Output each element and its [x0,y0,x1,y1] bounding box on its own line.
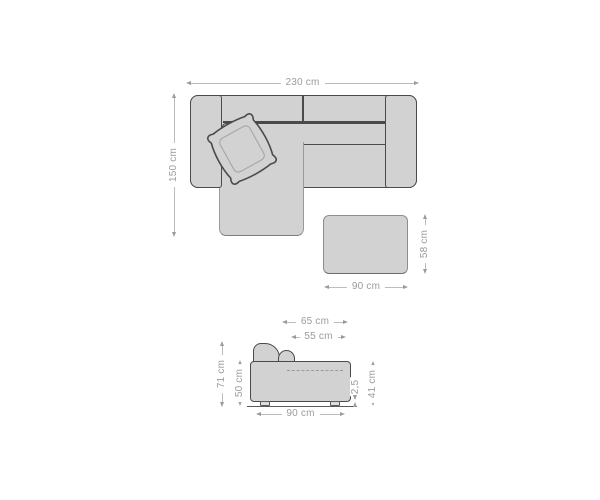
sofa-side-view-body [250,361,351,402]
dim-seat-depth: 55 cm [291,331,346,343]
dim-arrow-down-icon [423,269,427,274]
seat-seam-dashed-line [287,370,343,371]
dim-arrow-left-icon [256,412,261,416]
dim-label-ottoman-width: 90 cm [347,281,385,293]
dim-arrow-left-icon [186,81,191,85]
dim-sofa-depth: 150 cm [168,93,180,237]
dim-label-seat-height: 41 cm [367,364,379,402]
dim-label-total-height: 71 cm [216,355,228,393]
dim-arrow-up-icon [172,93,176,98]
dim-arrow-left-icon [282,320,287,324]
dim-arrow-left-icon [291,335,296,339]
armrest-right [385,95,417,188]
pillow [199,107,285,193]
dim-back-depth: 65 cm [282,316,348,328]
dim-label-side-depth: 90 cm [281,408,319,420]
back-cushion-side [253,343,280,363]
dim-label-sofa-depth: 150 cm [168,143,180,187]
dim-label-sofa-width: 230 cm [281,77,325,89]
dim-armrest-height: 50 cm [234,360,246,406]
dim-side-depth: 90 cm [256,408,345,420]
back-cushion-divider [302,96,304,122]
dim-label-leg-height: 2,5 [350,378,362,397]
dim-ottoman-depth: 58 cm [419,214,431,274]
dim-arrow-right-icon [341,335,346,339]
dim-arrow-down-icon [172,232,176,237]
floor-line [247,406,357,408]
dim-arrow-left-icon [324,285,329,289]
dim-arrow-up-icon [353,402,357,407]
dim-total-height: 71 cm [216,341,228,407]
dim-label-seat-depth: 55 cm [299,331,337,343]
dim-seat-height: 41 cm [367,361,379,406]
dim-arrow-right-icon [340,412,345,416]
ottoman-top-view [323,215,408,274]
dim-ottoman-width: 90 cm [324,281,408,293]
dim-label-back-depth: 65 cm [296,316,334,328]
dim-sofa-width: 230 cm [186,77,419,89]
dim-arrow-right-icon [343,320,348,324]
dim-arrow-down-icon [220,402,224,407]
dim-label-ottoman-depth: 58 cm [419,225,431,263]
dim-arrow-right-icon [414,81,419,85]
pillow-outline [205,111,279,186]
dim-arrow-down-icon [353,395,357,400]
dim-arrow-right-icon [403,285,408,289]
furniture-dimension-diagram: 230 cm 150 cm 58 cm 90 cm [0,0,600,500]
dim-arrow-up-icon [423,214,427,219]
dim-arrow-up-icon [220,341,224,346]
dim-label-armrest-height: 50 cm [234,364,246,402]
